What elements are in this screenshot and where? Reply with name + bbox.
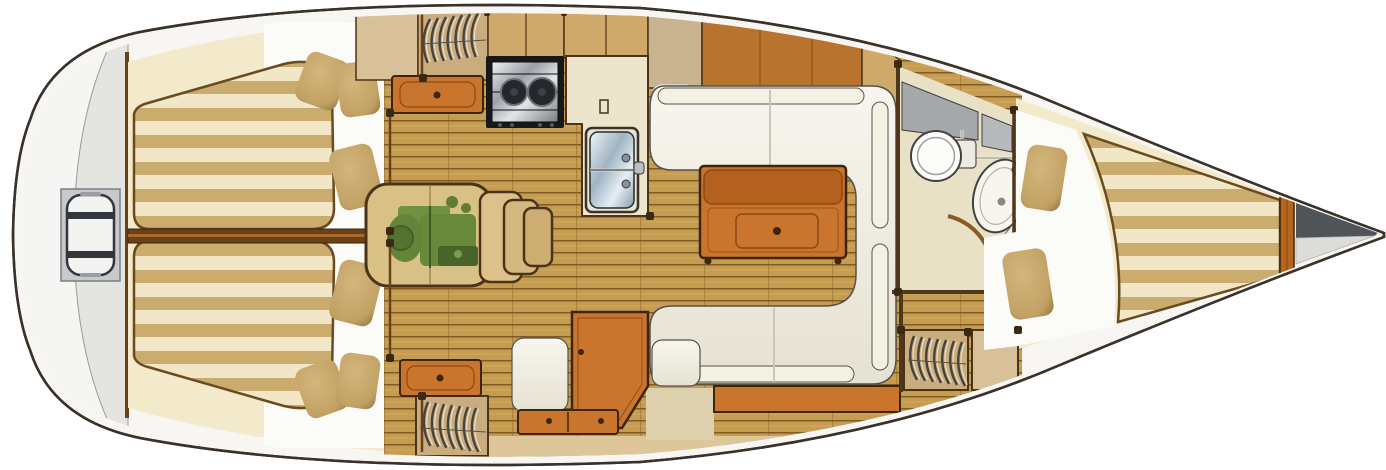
- swim-ladder-handle: [80, 273, 101, 277]
- nav-cushion: [652, 340, 700, 386]
- sink-faucet-knob: [622, 180, 630, 188]
- table-drawer-knob: [773, 227, 781, 235]
- swim-ladder-body: [67, 195, 114, 275]
- drawer-knob: [437, 375, 444, 382]
- sink-faucet-knob: [622, 154, 630, 162]
- drawer-knob: [434, 92, 441, 99]
- swim-ladder-rung: [67, 212, 114, 219]
- chart-table-knob: [578, 349, 584, 355]
- table-leaf: [704, 170, 842, 204]
- anchor-locker-light: [1296, 236, 1374, 264]
- swim-ladder: [61, 189, 120, 281]
- engine-icon: [387, 196, 478, 268]
- engine-compartment: [366, 184, 552, 286]
- centerline-bulkhead-trim: [128, 234, 374, 237]
- nav-seat: [512, 338, 568, 412]
- galley-panel: [356, 6, 418, 80]
- settee-base-front: [714, 386, 900, 412]
- settee-bolster: [872, 244, 888, 370]
- floorplan-svg: [0, 0, 1386, 470]
- head-toilet: [911, 131, 961, 181]
- pillow: [334, 351, 381, 410]
- swim-ladder-handle: [80, 192, 101, 196]
- galley-sink: [586, 128, 644, 212]
- sink-faucet: [634, 162, 644, 174]
- settee-bolster: [658, 88, 864, 104]
- settee-bolster: [872, 102, 888, 228]
- galley-stove: [486, 56, 564, 128]
- yacht-floorplan: [0, 0, 1386, 470]
- companionway-step-3: [524, 208, 552, 266]
- nav-floor-patch: [646, 388, 714, 440]
- swim-ladder-rung: [67, 251, 114, 258]
- salon-table: [700, 166, 846, 265]
